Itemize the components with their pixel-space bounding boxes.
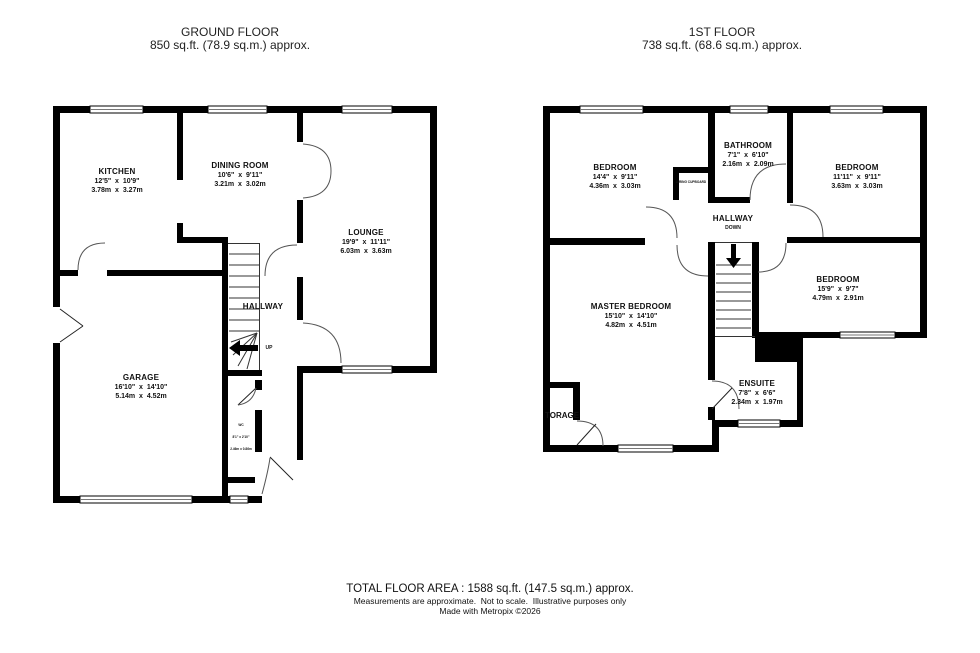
stair-treads xyxy=(229,254,259,331)
stair-treads xyxy=(716,265,751,328)
total-floor-area: TOTAL FLOOR AREA : 1588 sq.ft. (147.5 sq… xyxy=(0,583,980,596)
ground-hallway-label: HALLWAY xyxy=(223,302,303,311)
wall xyxy=(297,113,303,142)
wall xyxy=(53,270,78,276)
room-dims: 15'10" x 14'10" xyxy=(566,312,696,321)
footer: TOTAL FLOOR AREA : 1588 sq.ft. (147.5 sq… xyxy=(0,583,980,616)
wall xyxy=(430,106,437,373)
window xyxy=(840,332,895,338)
door-arc xyxy=(677,245,708,276)
wall xyxy=(107,270,228,276)
room-dims: 4.36m x 3.03m xyxy=(550,182,680,191)
first-floor-area: 738 sq.ft. (68.6 sq.m.) approx. xyxy=(572,39,872,52)
door-leaf xyxy=(60,326,83,342)
dining-room-label: DINING ROOM 10'6" x 9'11" 3.21m x 3.02m xyxy=(175,161,305,189)
storage-label: TORAGE xyxy=(545,411,579,420)
room-dims: 3.21m x 3.02m xyxy=(175,180,305,189)
window xyxy=(618,445,673,452)
wall xyxy=(297,277,303,320)
room-dims: 2.34m x 1.97m xyxy=(692,398,822,407)
kitchen-label: KITCHEN 12'5" x 10'9" 3.78m x 3.27m xyxy=(52,167,182,195)
window xyxy=(90,106,143,113)
wall xyxy=(228,477,255,483)
door-arc xyxy=(78,243,105,270)
door-arc xyxy=(758,243,786,272)
first-hallway-label: HALLWAY xyxy=(693,214,773,223)
room-name: BEDROOM xyxy=(773,275,903,285)
window xyxy=(208,106,267,113)
wall xyxy=(297,366,303,460)
floorplan-graphics xyxy=(0,0,980,653)
bedroom3-label: BEDROOM 15'9" x 9'7" 4.79m x 2.91m xyxy=(773,275,903,303)
room-name: BEDROOM xyxy=(550,163,680,173)
room-dims: 6.03m x 3.63m xyxy=(301,247,431,256)
window xyxy=(80,496,192,503)
lounge-label: LOUNGE 19'9" x 11'11" 6.03m x 3.63m xyxy=(301,228,431,256)
room-name: BATHROOM xyxy=(683,141,813,151)
wall xyxy=(543,238,645,245)
room-dims: 16'10" x 14'10" xyxy=(76,383,206,392)
room-dims: 10'6" x 9'11" xyxy=(175,171,305,180)
first-floor-header: 1ST FLOOR 738 sq.ft. (68.6 sq.m.) approx… xyxy=(572,26,872,52)
window xyxy=(580,106,643,113)
up-arrow xyxy=(229,340,258,356)
wall xyxy=(787,237,927,243)
wall xyxy=(543,382,580,388)
wall xyxy=(920,106,927,338)
ground-floor-header: GROUND FLOOR 850 sq.ft. (78.9 sq.m.) app… xyxy=(80,26,380,52)
room-dims: 11'11" x 9'11" xyxy=(792,173,922,182)
ground-floor-area: 850 sq.ft. (78.9 sq.m.) approx. xyxy=(80,39,380,52)
door-arc xyxy=(790,205,823,237)
room-dims: 12'5" x 10'9" xyxy=(52,177,182,186)
wall xyxy=(708,197,750,203)
door-arc xyxy=(303,323,341,363)
window xyxy=(738,420,780,427)
door-arc xyxy=(262,458,270,494)
door-leaf xyxy=(577,424,596,445)
airing-cupboard-label: AIRING CUPBOARD xyxy=(675,180,707,184)
master-bedroom-label: MASTER BEDROOM 15'10" x 14'10" 4.82m x 4… xyxy=(566,302,696,330)
wall xyxy=(228,370,262,376)
room-name: BEDROOM xyxy=(792,163,922,173)
garage-label: GARAGE 16'10" x 14'10" 5.14m x 4.52m xyxy=(76,373,206,401)
window xyxy=(830,106,883,113)
first-stairs xyxy=(715,243,755,337)
bedroom2-label: BEDROOM 11'11" x 9'11" 3.63m x 3.03m xyxy=(792,163,922,191)
door-arc xyxy=(265,245,297,276)
room-name: GARAGE xyxy=(76,373,206,383)
wall xyxy=(708,407,715,420)
up-label: UP xyxy=(261,345,277,351)
room-dims: 15'9" x 9'7" xyxy=(773,285,903,294)
door-arc xyxy=(303,144,331,171)
ensuite-label: ENSUITE 7'8" x 6'6" 2.34m x 1.97m xyxy=(692,379,822,407)
door-arc xyxy=(646,207,677,238)
wall xyxy=(53,106,60,503)
door-arc xyxy=(750,164,786,200)
credit: Made with Metropix ©2026 xyxy=(0,606,980,616)
room-name: ENSUITE xyxy=(692,379,822,389)
room-dims: 5.14m x 4.52m xyxy=(76,392,206,401)
room-dims: 3.63m x 3.03m xyxy=(792,182,922,191)
room-name: KITCHEN xyxy=(52,167,182,177)
room-name: LOUNGE xyxy=(301,228,431,238)
down-label: DOWN xyxy=(713,225,753,231)
room-name: WC xyxy=(211,423,271,427)
room-dims: 8'1" x 2'10" xyxy=(211,435,271,439)
window xyxy=(342,106,392,113)
room-name: MASTER BEDROOM xyxy=(566,302,696,312)
window xyxy=(342,366,392,373)
window xyxy=(730,106,768,113)
door-arc xyxy=(303,171,331,198)
door-leaf xyxy=(60,309,83,326)
room-dims: 4.79m x 2.91m xyxy=(773,294,903,303)
room-dims: 19'9" x 11'11" xyxy=(301,238,431,247)
wc-label: WC 8'1" x 2'10" 2.46m x 0.86m xyxy=(211,415,271,459)
down-arrow xyxy=(726,244,741,268)
window xyxy=(230,496,248,503)
room-dims: 2.46m x 0.86m xyxy=(211,447,271,451)
room-name: DINING ROOM xyxy=(175,161,305,171)
door-leaf xyxy=(270,457,293,480)
room-dims: 7'8" x 6'6" xyxy=(692,389,822,398)
room-dims: 3.78m x 3.27m xyxy=(52,186,182,195)
door-arc xyxy=(577,421,603,446)
wall xyxy=(177,237,228,243)
door-opening xyxy=(52,307,61,343)
room-dims: 7'1" x 6'10" xyxy=(683,151,813,160)
chimney-void xyxy=(755,337,803,362)
room-dims: 14'4" x 9'11" xyxy=(550,173,680,182)
wall xyxy=(708,242,715,380)
wall xyxy=(543,106,550,452)
room-dims: 4.82m x 4.51m xyxy=(566,321,696,330)
disclaimer: Measurements are approximate. Not to sca… xyxy=(0,596,980,606)
floorplan-page: GROUND FLOOR 850 sq.ft. (78.9 sq.m.) app… xyxy=(0,0,980,653)
bedroom1-label: BEDROOM 14'4" x 9'11" 4.36m x 3.03m xyxy=(550,163,680,191)
wall xyxy=(752,242,759,337)
